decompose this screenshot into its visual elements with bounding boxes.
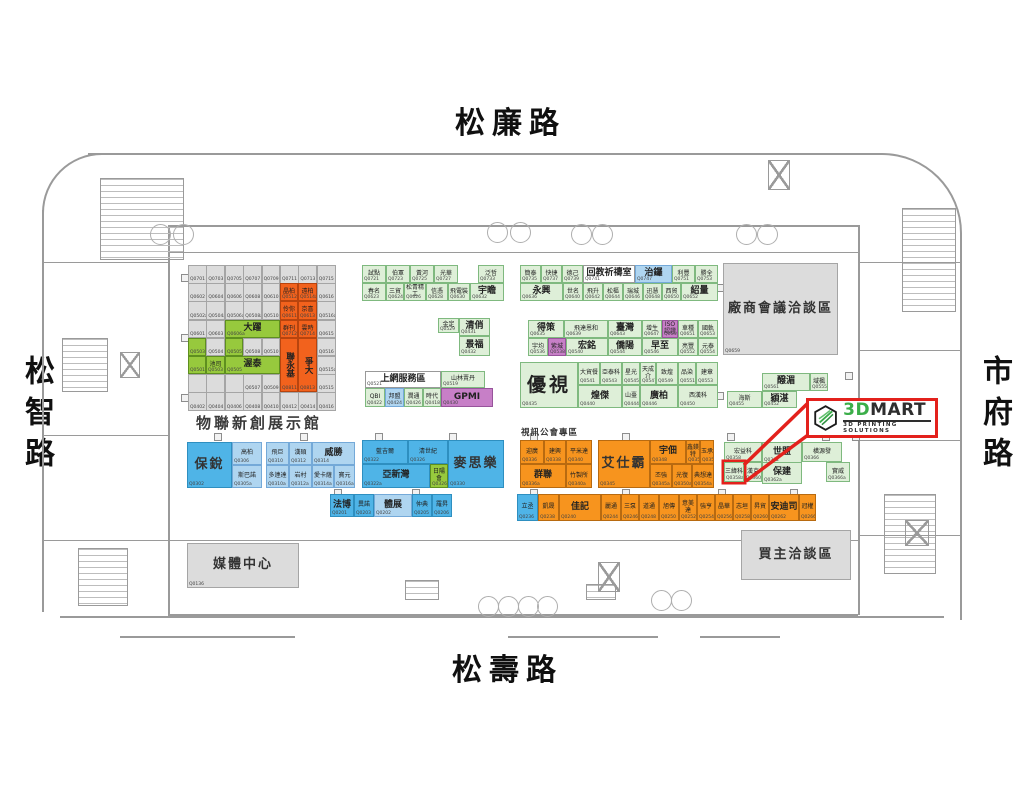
exhibition-floor-map: Q0701Q0703Q0705Q0707Q0709Q0711Q0713Q0715… — [0, 0, 1024, 791]
logo-tagline: 3D PRINTING SOLUTIONS — [843, 423, 931, 434]
3dmart-hexagon-icon — [813, 401, 838, 435]
logo-3d-text: 3D — [843, 400, 870, 420]
area-label: 物聯新創展示館 — [196, 412, 322, 433]
3dmart-logo: 3DMART 3D PRINTING SOLUTIONS — [806, 398, 938, 438]
logo-mart-text: MART — [870, 400, 926, 420]
area-label: 視訊公會專區 — [521, 426, 578, 438]
label-layer: 物聯新創展示館視訊公會專區 — [0, 0, 1024, 791]
3dmart-wordmark: 3DMART 3D PRINTING SOLUTIONS — [843, 402, 931, 434]
